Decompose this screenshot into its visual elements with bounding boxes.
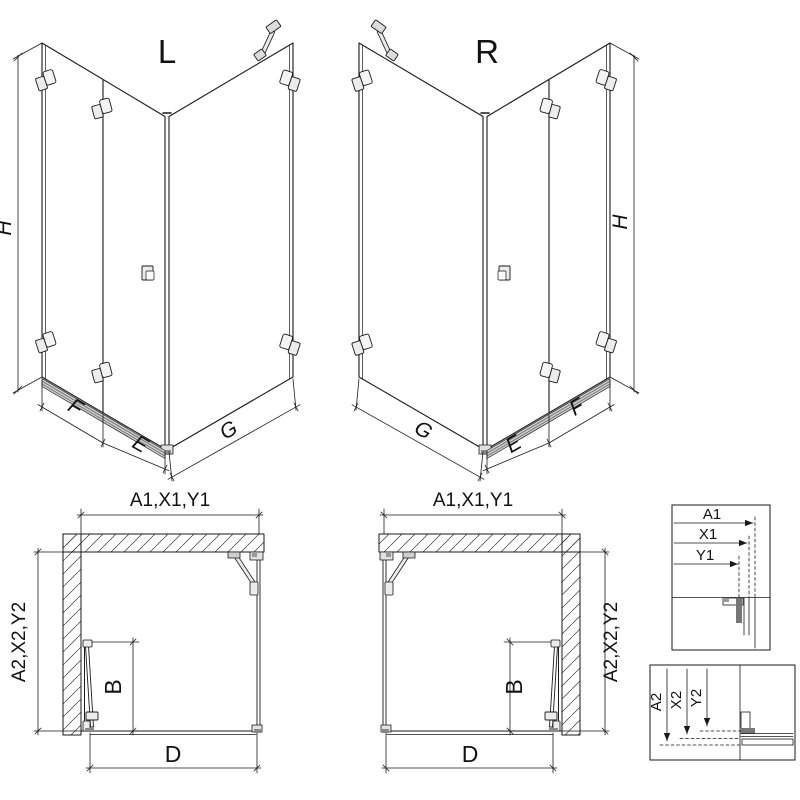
view-label-right: R bbox=[475, 33, 499, 70]
plan-top-dim-label-right: A1,X1,Y1 bbox=[433, 490, 513, 511]
plan-bottom-dim-label-right: D bbox=[462, 741, 479, 767]
plan-side-dim-label-right: A2,X2,Y2 bbox=[601, 602, 622, 682]
wall-hatch-top-left-plan bbox=[63, 534, 264, 552]
detail-box-top: A1 X1 Y1 bbox=[672, 505, 770, 650]
height-dim-label-right: H bbox=[609, 214, 632, 230]
plan-view-right: A1,X1,Y1 A2,X2,Y2 B D bbox=[379, 490, 622, 773]
iso-right-drawing bbox=[350, 20, 639, 481]
iso-view-right: R H F E G bbox=[350, 20, 639, 481]
detail-box-bottom: A2 X2 Y2 bbox=[648, 665, 795, 760]
detail-a1-label: A1 bbox=[703, 506, 721, 523]
wall-hatch-side-left-plan bbox=[63, 534, 81, 735]
shower-enclosure-technical-drawing: L H F E G R H F E G A1,X1,Y1 A2,X2,Y2 B … bbox=[0, 0, 800, 800]
wall-hatch-top-right-plan bbox=[379, 534, 580, 552]
height-dim-label-left: H bbox=[0, 220, 16, 236]
iso-left-drawing bbox=[13, 20, 302, 481]
plan-bottom-dim-label-left: D bbox=[165, 741, 182, 767]
plan-top-dim-label-left: A1,X1,Y1 bbox=[130, 490, 210, 511]
detail-y2-label: Y2 bbox=[688, 689, 705, 707]
plan-side-dim-label-left: A2,X2,Y2 bbox=[9, 602, 30, 682]
detail-y1-label: Y1 bbox=[696, 547, 714, 564]
iso-view-left: L H F E G bbox=[0, 20, 302, 481]
view-label-left: L bbox=[158, 33, 176, 70]
plan-door-dim-label-left: B bbox=[100, 679, 126, 694]
detail-bottom-frame bbox=[650, 665, 795, 760]
plan-view-left: A1,X1,Y1 A2,X2,Y2 B D bbox=[9, 490, 264, 773]
plan-door-dim-label-right: B bbox=[501, 679, 527, 694]
detail-x1-label: X1 bbox=[699, 526, 717, 543]
detail-x2-label: X2 bbox=[668, 691, 685, 709]
detail-a2-label: A2 bbox=[648, 693, 665, 711]
wall-hatch-side-right-plan bbox=[562, 534, 580, 735]
